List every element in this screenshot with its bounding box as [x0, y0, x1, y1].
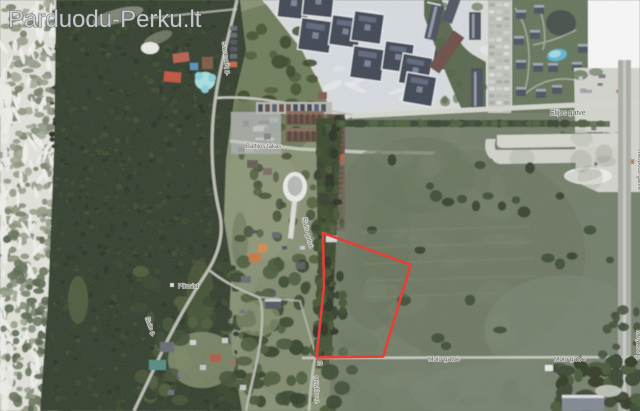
svg-text:Parduodu-Perku.lt: Parduodu-Perku.lt [8, 6, 202, 33]
